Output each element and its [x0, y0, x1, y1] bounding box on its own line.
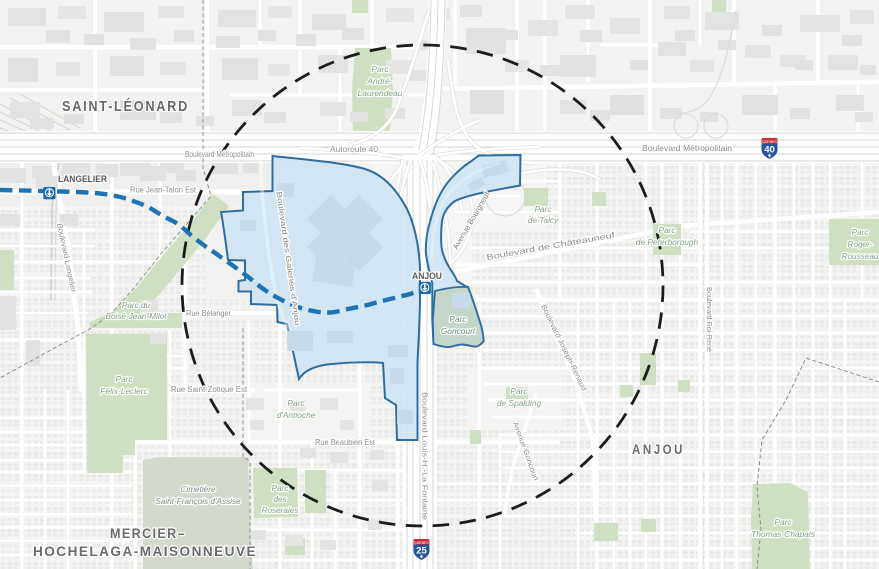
svg-text:de Spalding: de Spalding [497, 398, 542, 408]
svg-text:Laurendeau: Laurendeau [358, 88, 403, 98]
svg-text:MERCIER–: MERCIER– [110, 525, 186, 541]
svg-text:Parc: Parc [272, 484, 289, 493]
svg-text:Parc: Parc [774, 517, 792, 527]
svg-text:Roseraies: Roseraies [262, 506, 299, 515]
svg-text:de Talcy: de Talcy [528, 216, 559, 225]
svg-text:Parc: Parc [371, 64, 389, 74]
svg-text:Félix-Leclerc: Félix-Leclerc [100, 386, 148, 396]
svg-text:QUEBEC: QUEBEC [414, 541, 430, 545]
svg-text:Parc: Parc [535, 205, 552, 214]
svg-text:Rue Beaubien Est: Rue Beaubien Est [315, 438, 376, 447]
svg-text:ANJOU: ANJOU [412, 271, 442, 281]
svg-text:Parc: Parc [449, 314, 467, 324]
svg-text:Saint-François d'Assise: Saint-François d'Assise [155, 497, 241, 506]
svg-text:HOCHELAGA-MAISONNEUVE: HOCHELAGA-MAISONNEUVE [33, 543, 257, 559]
svg-text:Rue Saint-Zotique Est: Rue Saint-Zotique Est [171, 385, 248, 394]
svg-text:Parc: Parc [658, 225, 676, 235]
svg-text:25: 25 [416, 546, 427, 557]
svg-text:Parc: Parc [510, 386, 528, 396]
svg-text:Parc: Parc [852, 228, 869, 237]
svg-text:Goncourt: Goncourt [441, 326, 476, 336]
svg-text:d'Antioche: d'Antioche [277, 410, 316, 420]
svg-text:des: des [273, 495, 286, 504]
svg-text:Parc: Parc [115, 374, 133, 384]
svg-text:Parc: Parc [287, 398, 305, 408]
svg-text:Boulevard Louis-H.-La Fontaine: Boulevard Louis-H.-La Fontaine [421, 392, 430, 520]
svg-text:Thomas-Chapais: Thomas-Chapais [751, 529, 816, 539]
svg-text:Boisé-Jean-Milot: Boisé-Jean-Milot [106, 312, 168, 321]
svg-text:Cimetière: Cimetière [180, 485, 215, 494]
svg-text:Boulevard Roi-René: Boulevard Roi-René [705, 287, 714, 352]
svg-text:Autoroute 40: Autoroute 40 [330, 145, 379, 154]
svg-text:Boulevard Métropolitain: Boulevard Métropolitain [185, 150, 254, 159]
svg-text:QUEBEC: QUEBEC [762, 140, 778, 144]
svg-text:Parc du: Parc du [122, 301, 151, 310]
svg-text:LANGELIER: LANGELIER [58, 174, 108, 184]
svg-text:André-: André- [366, 76, 392, 86]
svg-text:ANJOU: ANJOU [632, 442, 685, 457]
svg-text:Rue Bélanger: Rue Bélanger [186, 309, 231, 318]
svg-text:Rue Jean-Talon Est: Rue Jean-Talon Est [130, 186, 197, 195]
svg-text:Boulevard Métropolitain: Boulevard Métropolitain [642, 144, 732, 153]
svg-text:SAINT-LÉONARD: SAINT-LÉONARD [62, 98, 189, 115]
svg-text:Roger-: Roger- [848, 240, 873, 249]
svg-text:de Peterborough: de Peterborough [636, 237, 699, 247]
svg-text:Rousseau: Rousseau [842, 252, 879, 261]
